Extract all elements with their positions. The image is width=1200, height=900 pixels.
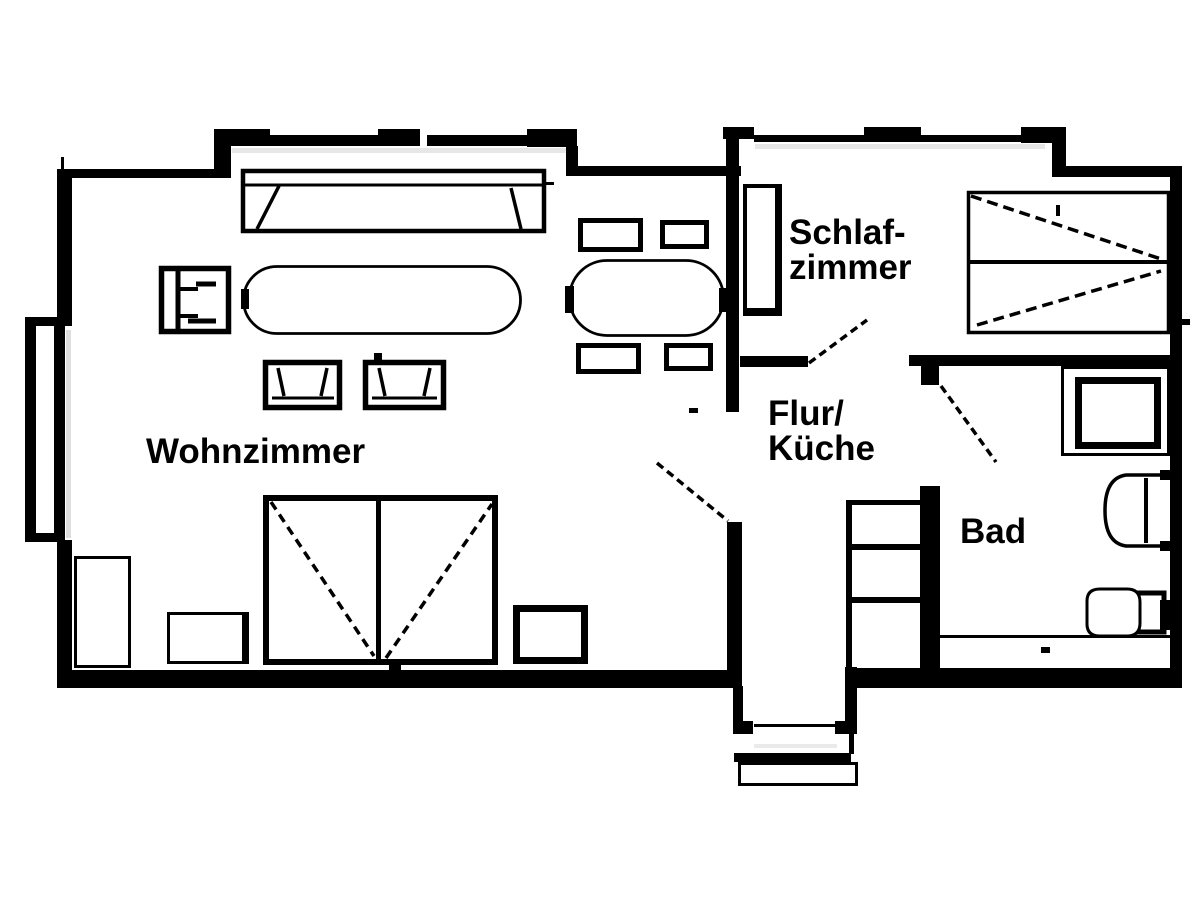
svg-text:Schlaf-: Schlaf- <box>789 213 906 252</box>
svg-text:Flur/: Flur/ <box>768 394 844 433</box>
svg-text:zimmer: zimmer <box>789 248 912 287</box>
svg-text:Wohnzimmer: Wohnzimmer <box>146 432 365 471</box>
svg-text:Bad: Bad <box>960 512 1026 551</box>
svg-text:Küche: Küche <box>768 429 875 468</box>
